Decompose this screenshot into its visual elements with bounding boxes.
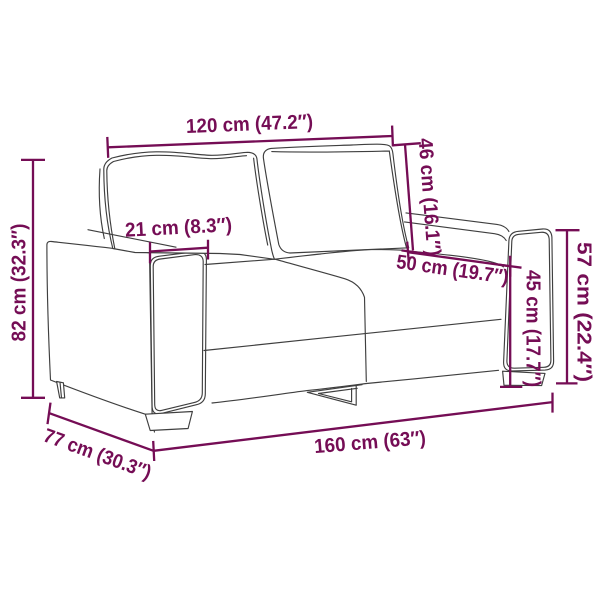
svg-text:50 cm (19.7″): 50 cm (19.7″) — [395, 251, 510, 289]
svg-text:57 cm (22.4″): 57 cm (22.4″) — [573, 242, 595, 382]
svg-text:46 cm (16.1″): 46 cm (16.1″) — [414, 137, 445, 256]
svg-text:120 cm (47.2″): 120 cm (47.2″) — [186, 111, 314, 138]
svg-text:160 cm (63″): 160 cm (63″) — [313, 427, 426, 458]
svg-text:45 cm (17.7″): 45 cm (17.7″) — [522, 270, 544, 387]
svg-text:77 cm (30.3″): 77 cm (30.3″) — [40, 425, 154, 484]
svg-text:82 cm (32.3″): 82 cm (32.3″) — [9, 224, 31, 342]
